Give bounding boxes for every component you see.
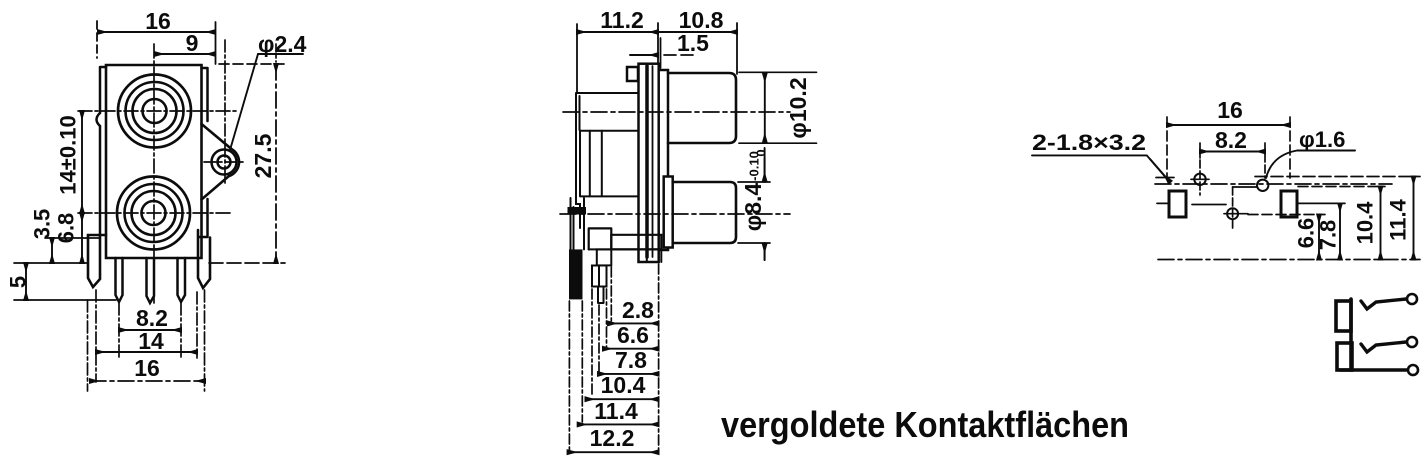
- svg-text:7.8: 7.8: [615, 347, 647, 373]
- svg-text:11.2: 11.2: [600, 7, 644, 33]
- svg-text:2-1.8×3.2: 2-1.8×3.2: [1032, 130, 1146, 155]
- svg-text:10.4: 10.4: [601, 372, 646, 398]
- svg-text:27.5: 27.5: [250, 133, 276, 178]
- svg-text:0: 0: [754, 149, 769, 156]
- svg-text:φ10.2: φ10.2: [785, 77, 811, 138]
- svg-text:6.6: 6.6: [617, 322, 649, 348]
- svg-text:φ1.6: φ1.6: [1299, 127, 1345, 152]
- svg-text:8.2: 8.2: [1215, 127, 1247, 153]
- svg-text:9: 9: [186, 30, 199, 56]
- svg-text:12.2: 12.2: [590, 425, 635, 451]
- svg-text:3.5: 3.5: [30, 209, 55, 240]
- svg-text:16: 16: [145, 8, 171, 34]
- svg-text:16: 16: [134, 355, 160, 381]
- svg-text:11.4: 11.4: [1386, 198, 1411, 240]
- svg-text:2.8: 2.8: [622, 297, 654, 323]
- svg-text:7.8: 7.8: [1316, 220, 1341, 251]
- svg-text:φ8.4: φ8.4: [740, 183, 766, 232]
- svg-text:16: 16: [1217, 97, 1243, 123]
- svg-text:vergoldete Kontaktflächen: vergoldete Kontaktflächen: [721, 404, 1129, 445]
- svg-text:14: 14: [138, 328, 164, 354]
- svg-text:1.5: 1.5: [677, 30, 709, 56]
- svg-text:14±0.10: 14±0.10: [56, 115, 81, 194]
- svg-text:10.4: 10.4: [1353, 201, 1378, 245]
- svg-text:11.4: 11.4: [594, 398, 638, 424]
